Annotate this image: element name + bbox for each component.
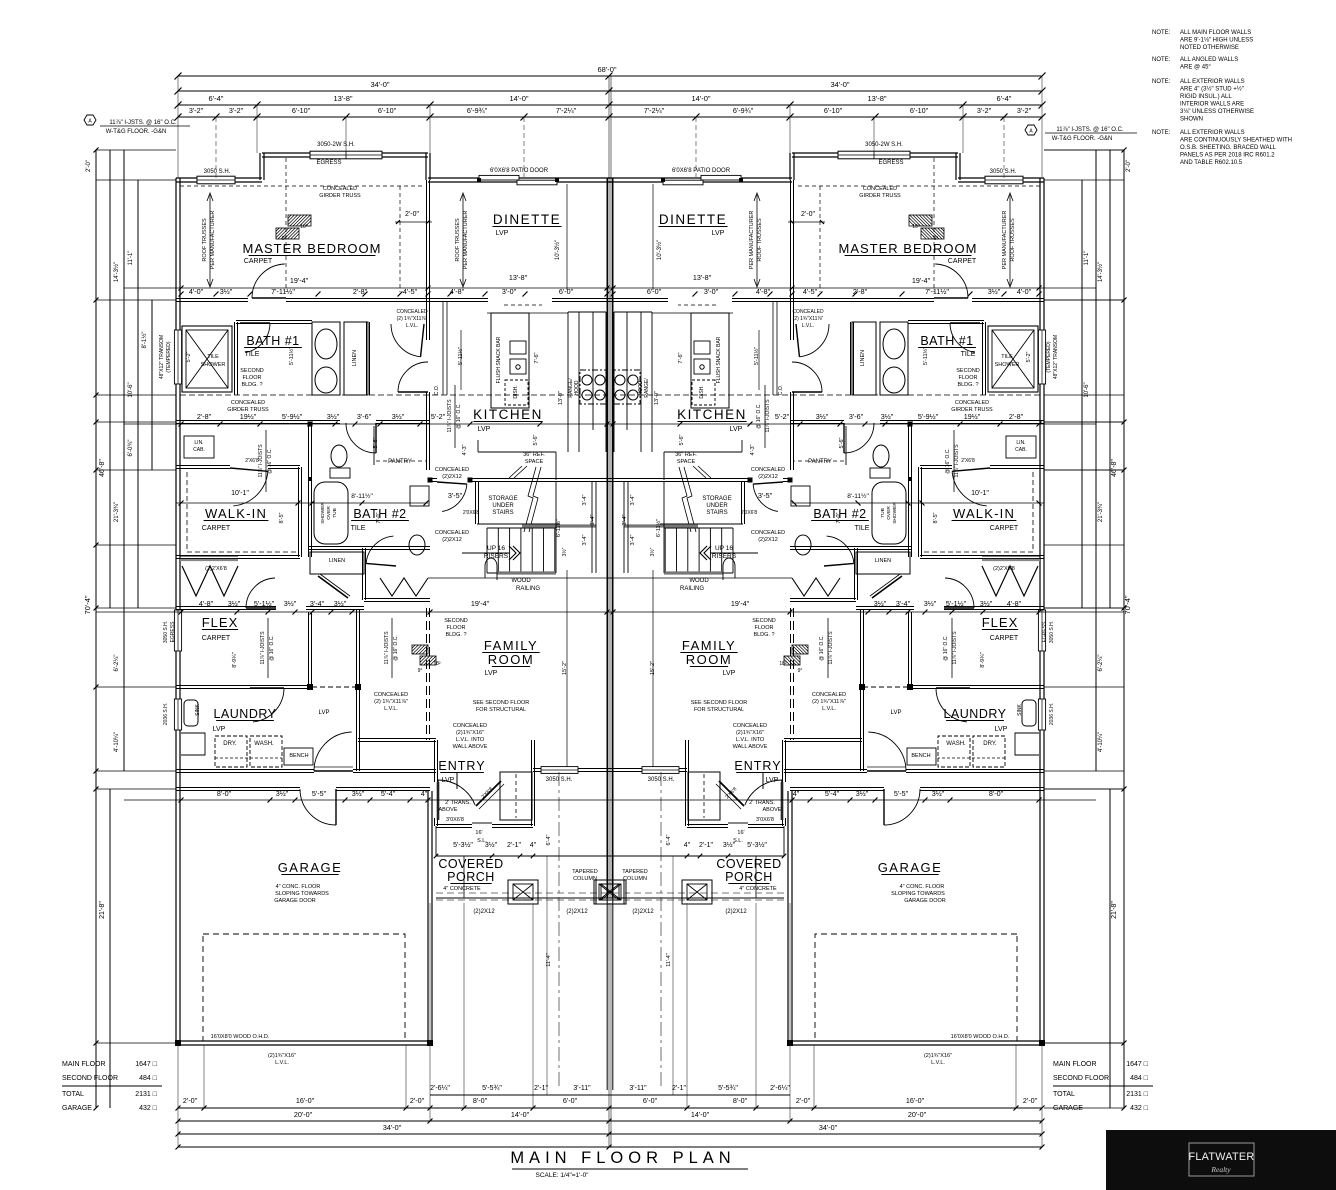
svg-text:PER MANUFACTURER: PER MANUFACTURER: [463, 211, 469, 270]
svg-text:GARAGE: GARAGE: [878, 860, 943, 875]
svg-text:W-T&G FLOOR. -G&N: W-T&G FLOOR. -G&N: [1052, 136, 1113, 142]
svg-text:6'-9¾": 6'-9¾": [733, 106, 754, 115]
svg-text:(2)2'X6'8: (2)2'X6'8: [205, 566, 227, 572]
svg-text:CARPET: CARPET: [990, 635, 1019, 642]
svg-text:3050-2W S.H.: 3050-2W S.H.: [865, 142, 903, 148]
svg-text:16'-0": 16'-0": [906, 1096, 925, 1105]
svg-text:(2)2'X6'8: (2)2'X6'8: [993, 566, 1015, 572]
svg-text:TUB: TUB: [880, 508, 886, 518]
svg-text:KITCHEN: KITCHEN: [473, 407, 543, 422]
svg-text:10'-6": 10'-6": [128, 382, 134, 397]
svg-text:FLUSH SNACK BAR: FLUSH SNACK BAR: [496, 336, 502, 383]
svg-text:5'-2": 5'-2": [1026, 351, 1032, 362]
svg-text:AND TABLE R602.10.5: AND TABLE R602.10.5: [1180, 160, 1243, 166]
svg-text:432 □: 432 □: [139, 1105, 158, 1112]
svg-text:GARAGE: GARAGE: [278, 860, 343, 875]
svg-text:ABOVE: ABOVE: [439, 807, 458, 813]
svg-text:RIGID INSUL.) ALL: RIGID INSUL.) ALL: [1180, 94, 1232, 100]
svg-text:FLEX: FLEX: [982, 615, 1019, 630]
svg-text:CONCEALED: CONCEALED: [374, 692, 408, 698]
svg-text:4'-8": 4'-8": [199, 599, 214, 608]
svg-text:2' TRANS.: 2' TRANS.: [445, 800, 471, 806]
svg-text:6'-10": 6'-10": [292, 106, 311, 115]
svg-text:7'-11½": 7'-11½": [925, 287, 949, 296]
svg-text:TILE: TILE: [351, 525, 366, 532]
svg-text:(2)2X12: (2)2X12: [632, 909, 654, 915]
svg-text:5'-2": 5'-2": [431, 412, 446, 421]
svg-text:@ 16" O.C.: @ 16" O.C.: [393, 635, 399, 660]
svg-text:ARE CONTINUOUSLY SHEATHED WITH: ARE CONTINUOUSLY SHEATHED WITH: [1180, 138, 1292, 144]
svg-text:CONCEALED: CONCEALED: [863, 186, 897, 192]
svg-text:LVP: LVP: [891, 710, 902, 716]
svg-text:L.V.L.: L.V.L.: [275, 1060, 289, 1066]
svg-text:8'-9¼": 8'-9¼": [980, 652, 986, 668]
svg-text:LIN.: LIN.: [194, 440, 203, 446]
svg-text:5'-1½": 5'-1½": [254, 599, 275, 608]
svg-text:3050 S.H.: 3050 S.H.: [204, 169, 231, 175]
svg-text:BLDG. ?: BLDG. ?: [445, 632, 466, 638]
svg-text:(TEMPERED): (TEMPERED): [1046, 341, 1052, 372]
svg-text:2'-0": 2'-0": [405, 211, 419, 218]
svg-text:CONCEALED: CONCEALED: [396, 309, 428, 315]
svg-text:18²: 18²: [779, 661, 787, 667]
svg-text:13'-0": 13'-0": [654, 391, 660, 405]
svg-text:MAIN FLOOR: MAIN FLOOR: [1053, 1061, 1097, 1068]
svg-text:2'-1": 2'-1": [534, 1085, 548, 1092]
svg-text:O.S.B. SHEETING. BRACED WALL: O.S.B. SHEETING. BRACED WALL: [1180, 145, 1277, 151]
svg-text:2'X6'8: 2'X6'8: [245, 458, 259, 464]
svg-text:GIRDER TRUSS: GIRDER TRUSS: [319, 193, 361, 199]
svg-text:GARAGE: GARAGE: [1053, 1105, 1083, 1112]
svg-text:3½": 3½": [228, 599, 241, 608]
svg-text:FLEX: FLEX: [202, 615, 239, 630]
svg-text:RISERS: RISERS: [484, 553, 509, 560]
svg-text:6'-0": 6'-0": [563, 1096, 578, 1105]
svg-text:WALL ABOVE: WALL ABOVE: [453, 744, 488, 750]
svg-text:7'-11½": 7'-11½": [271, 287, 295, 296]
svg-text:RAILING: RAILING: [516, 586, 540, 592]
svg-text:5'-2": 5'-2": [775, 412, 790, 421]
svg-text:19½": 19½": [964, 412, 981, 421]
svg-text:6'-10": 6'-10": [824, 106, 843, 115]
svg-text:FAMILY: FAMILY: [682, 638, 736, 653]
svg-text:RANGE/: RANGE/: [644, 378, 650, 398]
svg-text:EGRESS: EGRESS: [316, 160, 341, 166]
svg-text:3½": 3½": [816, 412, 829, 421]
svg-text:432 □: 432 □: [1130, 1105, 1149, 1112]
svg-text:11'-4": 11'-4": [546, 953, 552, 967]
svg-text:(2)2X12: (2)2X12: [758, 537, 778, 543]
svg-text:46'-8": 46'-8": [99, 459, 106, 477]
svg-text:CONCEALED: CONCEALED: [453, 723, 487, 729]
svg-text:3½": 3½": [723, 841, 736, 849]
svg-text:SPACE: SPACE: [677, 459, 696, 465]
svg-text:LVP: LVP: [712, 230, 725, 237]
svg-text:STORAGE: STORAGE: [488, 496, 517, 502]
svg-text:20'-0": 20'-0": [908, 1110, 927, 1119]
svg-text:(2) 1¾"X11⅞": (2) 1¾"X11⅞": [397, 316, 428, 322]
svg-text:2'-1": 2'-1": [699, 842, 713, 849]
svg-text:CARPET: CARPET: [948, 258, 977, 265]
svg-text:13'-0": 13'-0": [558, 391, 564, 405]
svg-text:2'-0": 2'-0": [86, 160, 92, 172]
svg-text:8'-9¼": 8'-9¼": [232, 652, 238, 668]
svg-text:LVP: LVP: [478, 426, 491, 433]
svg-text:13'-8": 13'-8": [867, 94, 886, 103]
svg-text:ENTRY: ENTRY: [734, 759, 781, 773]
svg-text:SHOWER: SHOWER: [892, 502, 898, 524]
svg-text:2'-0": 2'-0": [801, 211, 815, 218]
svg-text:2'-8": 2'-8": [353, 287, 368, 296]
svg-text:BLDG. ?: BLDG. ?: [957, 382, 978, 388]
svg-text:CARPET: CARPET: [244, 258, 273, 265]
svg-text:11'-4": 11'-4": [666, 953, 672, 967]
svg-text:4'-8": 4'-8": [450, 287, 465, 296]
svg-text:3½": 3½": [649, 547, 656, 556]
svg-text:3'-5": 3'-5": [758, 491, 773, 500]
svg-text:SHOWER: SHOWER: [320, 502, 326, 524]
svg-text:PORCH: PORCH: [447, 870, 495, 884]
svg-text:70'-4": 70'-4": [1123, 595, 1132, 614]
svg-text:48"X12" TRANSOM: 48"X12" TRANSOM: [1053, 335, 1059, 379]
svg-text:4'-5": 4'-5": [803, 287, 818, 296]
svg-text:SHOWER: SHOWER: [201, 362, 226, 368]
svg-text:11'-1": 11'-1": [1084, 251, 1090, 266]
svg-text:4": 4": [530, 842, 537, 849]
svg-text:3'-4": 3'-4": [310, 599, 325, 608]
svg-text:ABOVE: ABOVE: [763, 807, 782, 813]
svg-text:SECOND: SECOND: [752, 618, 776, 624]
svg-text:SECOND: SECOND: [444, 618, 468, 624]
svg-text:ALL MAIN FLOOR WALLS: ALL MAIN FLOOR WALLS: [1180, 30, 1251, 36]
svg-text:(2)2X12: (2)2X12: [442, 474, 462, 480]
svg-text:(2) 1¾"X11⅞": (2) 1¾"X11⅞": [374, 699, 408, 705]
svg-text:3½": 3½": [220, 287, 233, 296]
svg-text:16': 16': [737, 830, 744, 836]
svg-text:14'-3½": 14'-3½": [1097, 262, 1104, 282]
svg-text:ROOF TRUSSES: ROOF TRUSSES: [202, 218, 208, 262]
svg-text:SHOWN: SHOWN: [1180, 117, 1203, 123]
svg-text:L.V.L.: L.V.L.: [822, 706, 836, 712]
svg-text:5'-3½": 5'-3½": [747, 841, 767, 849]
svg-text:5'-5¾": 5'-5¾": [482, 1085, 502, 1092]
svg-text:5'-6": 5'-6": [533, 434, 539, 445]
svg-text:7'-2¼": 7'-2¼": [644, 106, 665, 115]
svg-text:3'0X6'8: 3'0X6'8: [446, 817, 464, 823]
svg-text:3050 S.H.: 3050 S.H.: [648, 777, 675, 783]
svg-text:ROOF TRUSSES: ROOF TRUSSES: [757, 218, 763, 262]
svg-text:CONCEALED: CONCEALED: [733, 723, 767, 729]
svg-text:11'-1": 11'-1": [128, 251, 134, 266]
svg-text:19'-4": 19'-4": [290, 276, 309, 285]
svg-text:4" CONCRETE: 4" CONCRETE: [443, 886, 481, 892]
svg-text:2'0X6'8: 2'0X6'8: [463, 510, 480, 516]
svg-text:MAIN FLOOR: MAIN FLOOR: [62, 1061, 106, 1068]
svg-text:GIRDER TRUSS: GIRDER TRUSS: [859, 193, 901, 199]
svg-text:19'-4": 19'-4": [731, 599, 750, 608]
svg-text:FLATWATER: FLATWATER: [1188, 1151, 1254, 1163]
svg-text:10°: 10°: [300, 224, 308, 230]
svg-text:4'-10¼": 4'-10¼": [114, 732, 120, 752]
svg-text:10'-1": 10'-1": [971, 490, 989, 497]
svg-text:(2)2X12: (2)2X12: [758, 474, 778, 480]
svg-text:(2)1¾"X16": (2)1¾"X16": [456, 730, 484, 736]
svg-text:FLOOR: FLOOR: [243, 375, 262, 381]
svg-text:21'-8": 21'-8": [99, 901, 106, 919]
svg-text:10°: 10°: [912, 224, 920, 230]
svg-text:9°: 9°: [418, 668, 423, 674]
svg-text:3⅛" UNLESS OTHERWISE: 3⅛" UNLESS OTHERWISE: [1180, 109, 1254, 115]
svg-text:2'-8": 2'-8": [1009, 412, 1024, 421]
svg-text:COVERED: COVERED: [438, 857, 503, 871]
svg-text:@ 16" O.C.: @ 16" O.C.: [267, 448, 273, 473]
svg-text:3½": 3½": [327, 412, 340, 421]
svg-text:11⅞" I-JOISTS: 11⅞" I-JOISTS: [260, 631, 266, 665]
svg-text:2'-0": 2'-0": [1126, 160, 1132, 172]
svg-text:5'-2": 5'-2": [186, 351, 192, 362]
svg-text:14'-3½": 14'-3½": [113, 262, 120, 282]
svg-text:19½": 19½": [240, 412, 257, 421]
svg-text:NOTE:: NOTE:: [1152, 57, 1171, 63]
svg-text:NOTED OTHERWISE: NOTED OTHERWISE: [1180, 45, 1239, 51]
svg-text:5'-3½": 5'-3½": [453, 841, 473, 849]
svg-text:FLOOR: FLOOR: [959, 375, 978, 381]
svg-text:LINEN: LINEN: [352, 350, 358, 366]
svg-text:3'-2": 3'-2": [1017, 106, 1032, 115]
svg-text:13'-8": 13'-8": [509, 273, 528, 282]
svg-text:BATH #1: BATH #1: [920, 334, 973, 348]
svg-text:CONCEALED: CONCEALED: [231, 400, 265, 406]
svg-text:WASH.: WASH.: [254, 741, 274, 747]
svg-text:CONCEALED: CONCEALED: [435, 467, 469, 473]
svg-text:L.V.L. INTO: L.V.L. INTO: [736, 737, 765, 743]
svg-text:6'-10": 6'-10": [378, 106, 397, 115]
svg-text:3'-4": 3'-4": [622, 514, 628, 525]
svg-text:(2)2X12: (2)2X12: [442, 537, 462, 543]
svg-text:15'-2": 15'-2": [562, 661, 568, 675]
svg-text:TILE: TILE: [245, 351, 260, 358]
svg-text:ALL ANGLED WALLS: ALL ANGLED WALLS: [1180, 57, 1238, 63]
svg-text:KITCHEN: KITCHEN: [677, 407, 747, 422]
svg-text:2131 □: 2131 □: [1126, 1091, 1149, 1098]
svg-text:3050 S.H.: 3050 S.H.: [546, 777, 573, 783]
svg-text:SINK: SINK: [1017, 704, 1023, 716]
svg-text:ALL EXTERIOR WALLS: ALL EXTERIOR WALLS: [1180, 130, 1245, 136]
svg-text:STAIRS: STAIRS: [706, 510, 727, 516]
svg-text:TILE: TILE: [961, 351, 976, 358]
svg-text:0°: 0°: [282, 236, 287, 242]
svg-text:LVP: LVP: [213, 726, 226, 733]
svg-text:68'-0": 68'-0": [597, 65, 616, 74]
svg-text:6'-11½": 6'-11½": [555, 519, 562, 537]
svg-text:3'-11": 3'-11": [573, 1085, 591, 1092]
svg-text:STAIRS: STAIRS: [492, 510, 513, 516]
svg-text:3'-2": 3'-2": [229, 106, 244, 115]
svg-text:FAMILY: FAMILY: [484, 638, 538, 653]
svg-text:CONCEALED: CONCEALED: [792, 309, 824, 315]
svg-text:DRY.: DRY.: [983, 741, 997, 747]
svg-text:UNDER: UNDER: [706, 503, 728, 509]
svg-text:8'-11½": 8'-11½": [351, 492, 373, 500]
svg-text:ARE @ 45°: ARE @ 45°: [1180, 65, 1211, 71]
svg-text:20'-0": 20'-0": [294, 1110, 313, 1119]
svg-text:18²: 18²: [433, 661, 441, 667]
svg-text:11⅞" I-JOISTS: 11⅞" I-JOISTS: [765, 399, 771, 433]
svg-text:PER MANUFACTURER: PER MANUFACTURER: [749, 211, 755, 270]
svg-text:13'-8": 13'-8": [693, 273, 712, 282]
svg-text:LVP: LVP: [766, 777, 779, 784]
svg-text:CONCEALED: CONCEALED: [751, 530, 785, 536]
svg-text:4'-0": 4'-0": [1017, 287, 1032, 296]
svg-text:6'-4": 6'-4": [546, 834, 552, 845]
svg-text:4" CONCRETE: 4" CONCRETE: [739, 886, 777, 892]
svg-text:ENTRY: ENTRY: [438, 759, 485, 773]
svg-text:8'-0": 8'-0": [217, 789, 232, 798]
svg-text:TAPERED: TAPERED: [572, 869, 598, 875]
svg-text:11⅞" I-JOISTS: 11⅞" I-JOISTS: [384, 631, 390, 665]
svg-text:2'-0": 2'-0": [796, 1096, 811, 1105]
svg-text:FOR STRUCTURAL: FOR STRUCTURAL: [476, 707, 526, 713]
svg-text:INTERIOR WALLS ARE: INTERIOR WALLS ARE: [1180, 102, 1244, 108]
svg-text:6'-0¾": 6'-0¾": [128, 440, 134, 457]
svg-text:6'-4": 6'-4": [209, 94, 224, 103]
svg-text:3½": 3½": [980, 599, 993, 608]
svg-text:1647 □: 1647 □: [1126, 1061, 1149, 1068]
svg-text:14'-0": 14'-0": [691, 1110, 710, 1119]
svg-text:(2)1¾"X16": (2)1¾"X16": [268, 1053, 296, 1059]
svg-text:COLUMN: COLUMN: [573, 876, 597, 882]
svg-text:7'-6": 7'-6": [678, 352, 684, 363]
svg-text:LINEN: LINEN: [875, 558, 891, 564]
svg-text:SECOND FLOOR: SECOND FLOOR: [1053, 1075, 1109, 1082]
svg-text:3'-0": 3'-0": [704, 287, 719, 296]
svg-text:LVP: LVP: [319, 710, 330, 716]
svg-text:5'-9½": 5'-9½": [282, 412, 303, 421]
svg-text:RISERS: RISERS: [712, 553, 737, 560]
svg-text:5'-9½": 5'-9½": [918, 412, 939, 421]
svg-text:5'-5": 5'-5": [312, 789, 327, 798]
svg-text:(TEMPERED): (TEMPERED): [166, 341, 172, 372]
svg-text:HOOD: HOOD: [638, 380, 644, 395]
svg-text:3'-2": 3'-2": [977, 106, 992, 115]
svg-text:LIN.: LIN.: [1016, 440, 1025, 446]
svg-text:ARE 9'-1⅛" HIGH UNLESS: ARE 9'-1⅛" HIGH UNLESS: [1180, 38, 1253, 44]
svg-text:3½": 3½": [485, 841, 498, 849]
svg-text:6'-0": 6'-0": [559, 287, 574, 296]
svg-text:4": 4": [421, 789, 428, 798]
svg-text:LINEN: LINEN: [860, 350, 866, 366]
svg-text:3050 S.H.: 3050 S.H.: [1049, 621, 1055, 643]
svg-text:@ 16" O.C.: @ 16" O.C.: [269, 635, 275, 660]
svg-text:3½": 3½": [392, 412, 405, 421]
svg-text:STORAGE: STORAGE: [702, 496, 731, 502]
svg-text:4'-3": 4'-3": [750, 444, 756, 455]
svg-text:MAIN FLOOR PLAN: MAIN FLOOR PLAN: [510, 1149, 735, 1167]
svg-text:EGRESS: EGRESS: [170, 621, 176, 643]
svg-text:CARPET: CARPET: [202, 525, 231, 532]
svg-text:15'-2": 15'-2": [650, 661, 656, 675]
svg-text:BENCH: BENCH: [911, 753, 930, 759]
svg-text:SECOND FLOOR: SECOND FLOOR: [62, 1075, 118, 1082]
svg-text:TUB: TUB: [332, 508, 338, 518]
svg-text:3'-4": 3'-4": [582, 534, 588, 545]
svg-text:11⅞" I-JOISTS: 11⅞" I-JOISTS: [258, 444, 264, 478]
svg-text:8'-5": 8'-5": [279, 512, 285, 523]
svg-text:PANTRY: PANTRY: [808, 459, 832, 465]
svg-text:RAILING: RAILING: [680, 586, 704, 592]
svg-text:BLDG. ?: BLDG. ?: [241, 382, 262, 388]
svg-text:CARPET: CARPET: [202, 635, 231, 642]
svg-text:2'-8": 2'-8": [853, 287, 868, 296]
svg-text:6'-9¾": 6'-9¾": [467, 106, 488, 115]
svg-text:0°: 0°: [934, 236, 939, 242]
svg-text:8'-0": 8'-0": [989, 789, 1004, 798]
svg-text:NOTE:: NOTE:: [1152, 30, 1171, 36]
svg-text:6'0X6'8 PATIO DOOR: 6'0X6'8 PATIO DOOR: [672, 168, 731, 174]
svg-text:5'-11½": 5'-11½": [922, 347, 929, 365]
svg-text:OVER: OVER: [886, 506, 892, 520]
svg-text:WALK-IN: WALK-IN: [953, 506, 1015, 521]
svg-text:5'-6": 5'-6": [373, 437, 379, 448]
svg-text:2'-6¼": 2'-6¼": [430, 1085, 450, 1092]
svg-text:CONCEALED: CONCEALED: [812, 692, 846, 698]
svg-text:11⅞" I-JSTS. @ 16" O.C.: 11⅞" I-JSTS. @ 16" O.C.: [1056, 127, 1124, 133]
svg-text:ROOM: ROOM: [686, 652, 732, 667]
svg-text:6'-0": 6'-0": [647, 287, 662, 296]
svg-text:4": 4": [793, 789, 800, 798]
svg-text:2'-6¼": 2'-6¼": [770, 1085, 790, 1092]
svg-text:(2)2X12: (2)2X12: [566, 909, 588, 915]
svg-text:ARE 4" (3½" STUD +½": ARE 4" (3½" STUD +½": [1180, 86, 1244, 93]
svg-text:14'-0": 14'-0": [511, 1110, 530, 1119]
svg-text:SLOPING TOWARDS: SLOPING TOWARDS: [275, 891, 329, 897]
svg-text:8'-11½": 8'-11½": [847, 492, 869, 500]
svg-text:TILE: TILE: [1001, 354, 1013, 360]
svg-text:COVERED: COVERED: [716, 857, 781, 871]
svg-text:TOTAL: TOTAL: [1053, 1091, 1075, 1098]
svg-text:DINETTE: DINETTE: [493, 212, 561, 227]
svg-text:2036 S.H.: 2036 S.H.: [163, 703, 169, 725]
svg-text:MASTER BEDROOM: MASTER BEDROOM: [243, 241, 382, 256]
svg-text:(2)2X12: (2)2X12: [473, 909, 495, 915]
svg-text:3½": 3½": [988, 287, 1001, 296]
svg-text:6'-2¼": 6'-2¼": [1098, 655, 1104, 672]
svg-text:L.V.L. INTO: L.V.L. INTO: [456, 737, 485, 743]
svg-text:4'-0": 4'-0": [189, 287, 204, 296]
svg-text:COLUMN: COLUMN: [623, 876, 647, 882]
svg-text:TILE: TILE: [207, 354, 219, 360]
svg-text:3½": 3½": [352, 789, 365, 798]
svg-text:46'-8": 46'-8": [1111, 459, 1118, 477]
svg-text:4" CONC. FLOOR: 4" CONC. FLOOR: [900, 884, 945, 890]
svg-text:UNDER: UNDER: [492, 503, 514, 509]
svg-text:UP 16: UP 16: [715, 545, 733, 552]
svg-text:11⅞" I-JSTS. @ 16" O.C.: 11⅞" I-JSTS. @ 16" O.C.: [109, 120, 177, 126]
svg-text:ROOF TRUSSES: ROOF TRUSSES: [1010, 218, 1016, 262]
svg-text:WOOD: WOOD: [689, 578, 709, 584]
svg-text:LAUNDRY: LAUNDRY: [943, 707, 1006, 721]
svg-text:21'-3¾": 21'-3¾": [114, 502, 120, 522]
svg-text:2'-0": 2'-0": [410, 1096, 425, 1105]
svg-text:DISH.: DISH.: [513, 385, 519, 398]
svg-text:SEE SECOND FLOOR: SEE SECOND FLOOR: [691, 700, 748, 706]
svg-text:4'-3": 4'-3": [462, 444, 468, 455]
svg-text:FLUSH SNACK BAR: FLUSH SNACK BAR: [716, 336, 722, 383]
svg-text:L.V.L.: L.V.L.: [802, 323, 815, 329]
svg-text:SECOND: SECOND: [956, 368, 980, 374]
svg-text:11⅞" I-JOISTS: 11⅞" I-JOISTS: [952, 631, 958, 665]
svg-text:EGRESS: EGRESS: [878, 160, 903, 166]
